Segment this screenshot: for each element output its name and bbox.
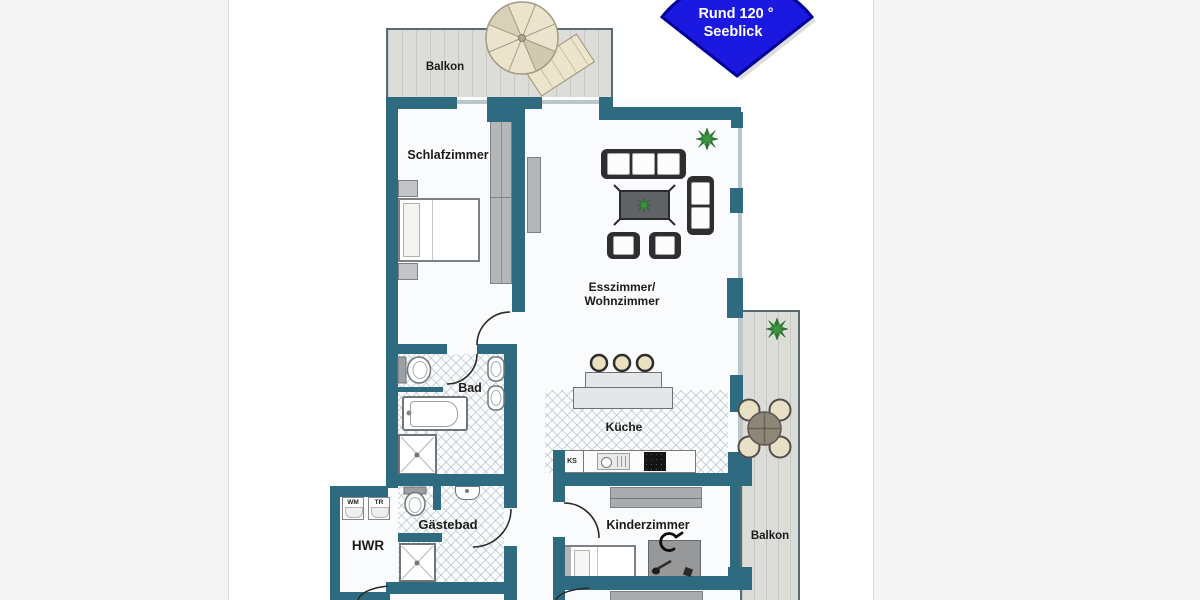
- badge-line2: Seeblick: [704, 24, 764, 40]
- bar-stools: [591, 355, 653, 371]
- plant-icon: [637, 198, 651, 212]
- room-label-kueche: Küche: [584, 420, 664, 434]
- bedroom-door-arc: [477, 312, 510, 345]
- plant-icon: [696, 128, 718, 150]
- wohnzimmer-line2: Wohnzimmer: [572, 295, 672, 309]
- room-label-kinderzimmer: Kinderzimmer: [588, 518, 708, 532]
- room-label-wohnzimmer: Esszimmer/ Wohnzimmer: [572, 281, 672, 308]
- door-arcs: [358, 312, 599, 600]
- wall-sinks: [488, 357, 504, 410]
- shower-drain: [415, 561, 420, 566]
- toilet: [398, 357, 431, 383]
- room-label-schlafzimmer: Schlafzimmer: [388, 148, 508, 162]
- room-label-balkon-top: Balkon: [405, 61, 485, 73]
- tub-faucet: [407, 411, 412, 416]
- balcony-table-set: [739, 400, 791, 458]
- room-label-bad: Bad: [450, 381, 490, 395]
- desk-chair: [661, 533, 682, 551]
- desk-items: [652, 561, 693, 577]
- utility-door-arc: [358, 586, 388, 600]
- hall-door-arc: [556, 588, 589, 600]
- floor-plan: KS WM TR: [0, 0, 1200, 600]
- badge-line1: Rund 120 °: [698, 6, 773, 22]
- sink-faucet: [465, 489, 469, 493]
- wohnzimmer-line1: Esszimmer/: [572, 281, 672, 295]
- bathroom-door-arc: [447, 354, 477, 384]
- room-label-hwr: HWR: [338, 538, 398, 553]
- plant-icon: [766, 318, 788, 340]
- guest-toilet: [404, 487, 426, 516]
- room-label-balkon-right: Balkon: [735, 530, 805, 542]
- room-label-gaestebad: Gästebad: [398, 517, 498, 532]
- parasol: [486, 2, 558, 74]
- seeblick-badge: Rund 120 ° Seeblick: [662, 0, 816, 80]
- shower-drain: [415, 453, 420, 458]
